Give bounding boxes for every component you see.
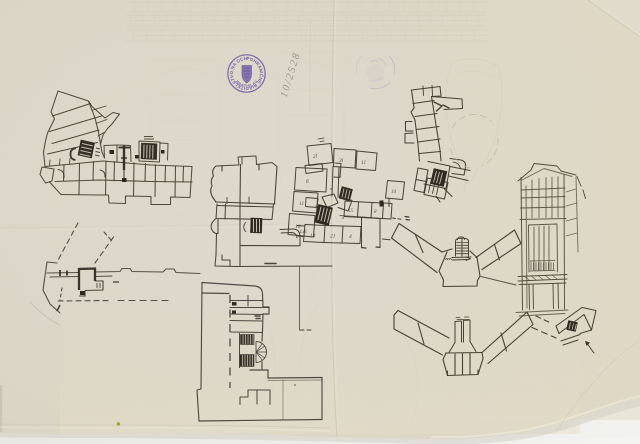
svg-text:11: 11 [361,160,366,166]
svg-text:3l: 3l [338,158,344,164]
svg-text:14: 14 [310,232,316,239]
svg-text:14: 14 [391,190,397,195]
svg-text:11: 11 [299,201,304,207]
svg-text:15: 15 [348,209,354,214]
svg-text:21: 21 [330,234,336,240]
svg-text:Lel.: Lel. [299,230,308,235]
svg-text:4: 4 [349,233,352,240]
